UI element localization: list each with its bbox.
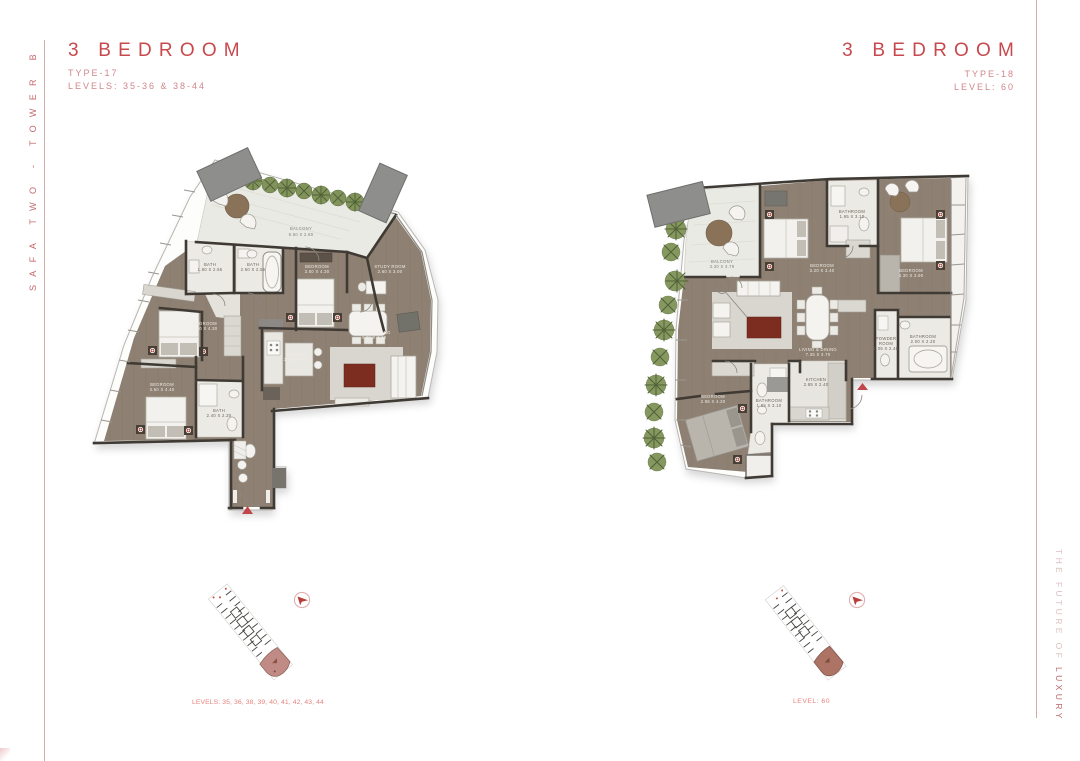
svg-text:3.30 X 3.90: 3.30 X 3.90 bbox=[899, 273, 924, 278]
svg-text:2.95 X 4.20: 2.95 X 4.20 bbox=[701, 399, 726, 404]
svg-text:3.00 X 2.40: 3.00 X 2.40 bbox=[284, 357, 309, 362]
svg-text:3.30 X 3.79: 3.30 X 3.79 bbox=[710, 264, 735, 269]
svg-text:2.60 X 2.55: 2.60 X 2.55 bbox=[241, 267, 266, 272]
svg-text:BALCONY: BALCONY bbox=[290, 226, 312, 231]
svg-text:1.60 X 2.55: 1.60 X 2.55 bbox=[198, 267, 223, 272]
svg-text:3.50 X 4.40: 3.50 X 4.40 bbox=[150, 387, 175, 392]
svg-text:2.40 X 2.30: 2.40 X 2.30 bbox=[207, 413, 232, 418]
svg-text:3.50 X 4.30: 3.50 X 4.30 bbox=[305, 269, 330, 274]
svg-text:2.60 X 3.00: 2.60 X 3.00 bbox=[378, 269, 403, 274]
svg-text:7.35 X 3.70: 7.35 X 3.70 bbox=[806, 352, 831, 357]
svg-text:1.65 X 3.10: 1.65 X 3.10 bbox=[840, 214, 865, 219]
svg-text:2.00 X 2.20: 2.00 X 2.20 bbox=[911, 339, 936, 344]
svg-text:3.20 X 3.40: 3.20 X 3.40 bbox=[810, 268, 835, 273]
svg-text:3.50 X 4.30: 3.50 X 4.30 bbox=[193, 326, 218, 331]
svg-text:1.05 X 2.40: 1.05 X 2.40 bbox=[874, 346, 899, 351]
svg-text:1.65 X 3.10: 1.65 X 3.10 bbox=[757, 403, 782, 408]
svg-text:9.50 X 2.80: 9.50 X 2.80 bbox=[289, 232, 314, 237]
svg-text:4.80 X 4.70: 4.80 X 4.70 bbox=[362, 335, 387, 340]
svg-text:2.65 X 2.40: 2.65 X 2.40 bbox=[804, 382, 829, 387]
